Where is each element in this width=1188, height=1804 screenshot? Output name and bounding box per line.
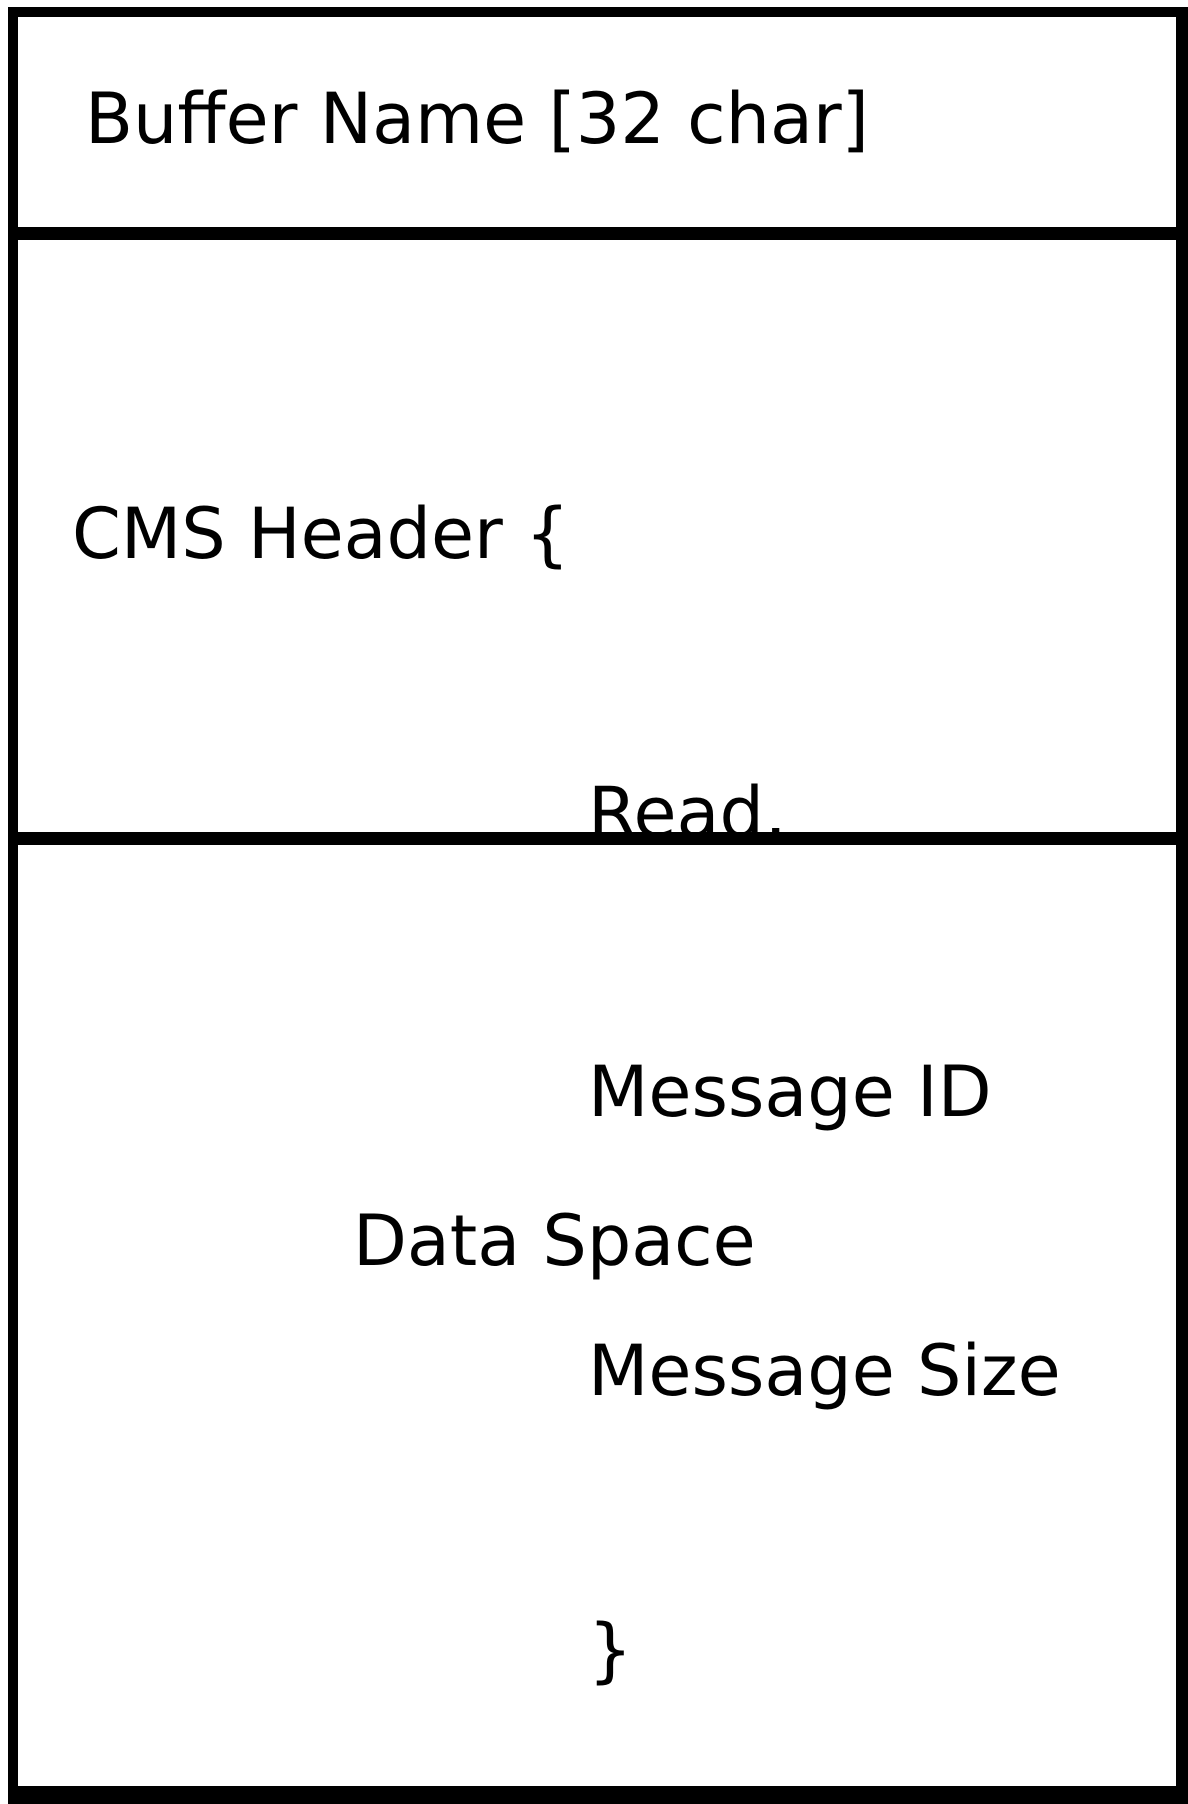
buffer-name-label: Buffer Name [32 char] bbox=[85, 84, 869, 154]
cms-header-section: CMS Header { Read, Message ID Message Si… bbox=[72, 302, 1061, 1804]
cms-header-close-brace: } bbox=[72, 1604, 1061, 1697]
buffer-name-cms-header-divider bbox=[18, 227, 1176, 240]
cms-header-field-message-size: Message Size bbox=[72, 1325, 1061, 1418]
cms-header-data-space-divider bbox=[18, 832, 1176, 845]
cms-header-open-line: CMS Header { bbox=[72, 488, 1061, 581]
data-space-label: Data Space bbox=[353, 1206, 756, 1276]
cms-header-field-message-id: Message ID bbox=[72, 1046, 1061, 1139]
cms-header-field-read: Read, bbox=[72, 767, 1061, 860]
buffer-layout-diagram: Buffer Name [32 char] CMS Header { Read,… bbox=[0, 0, 1188, 1804]
